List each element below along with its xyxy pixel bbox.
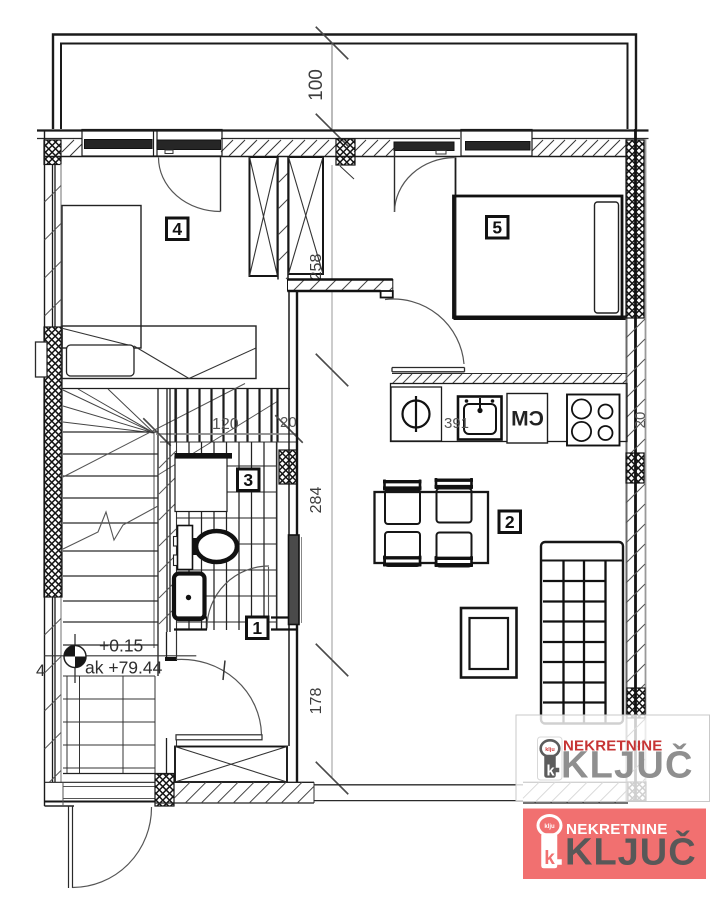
svg-text:k: k: [544, 848, 555, 869]
svg-text:k: k: [546, 764, 555, 780]
svg-text:100: 100: [306, 69, 327, 101]
svg-text:178: 178: [308, 688, 325, 715]
svg-text:120: 120: [212, 416, 239, 433]
svg-text:CM: CM: [511, 408, 544, 431]
svg-text:KLJUČ: KLJUČ: [565, 829, 697, 874]
svg-text:1: 1: [252, 618, 262, 638]
svg-text:4: 4: [172, 219, 182, 239]
svg-text:ak +79.44: ak +79.44: [85, 658, 163, 678]
svg-text:klju: klju: [544, 824, 555, 830]
svg-text:3: 3: [243, 470, 253, 490]
svg-text:5: 5: [492, 218, 502, 238]
svg-text:klju: klju: [545, 747, 554, 753]
svg-text:20: 20: [632, 412, 649, 429]
svg-text:KLJUČ: KLJUČ: [561, 742, 694, 787]
svg-text:4: 4: [36, 662, 45, 680]
svg-text:391: 391: [444, 415, 469, 432]
svg-text:2: 2: [505, 512, 515, 532]
svg-text:+0.15: +0.15: [99, 636, 143, 656]
svg-text:284: 284: [308, 487, 325, 514]
svg-text:258: 258: [308, 254, 325, 281]
